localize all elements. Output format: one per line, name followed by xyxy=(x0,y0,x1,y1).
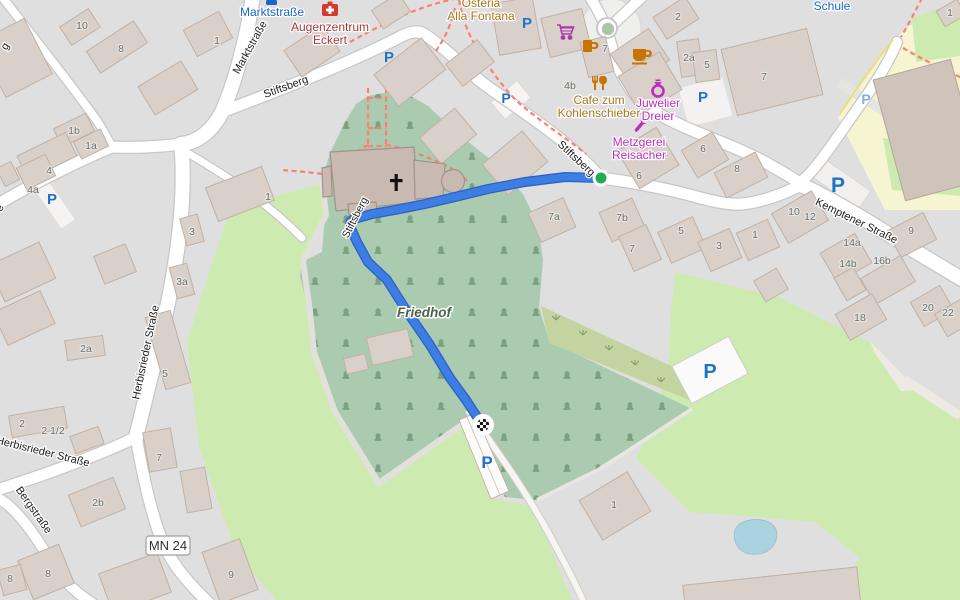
svg-text:Eckert: Eckert xyxy=(313,33,348,47)
svg-text:7: 7 xyxy=(156,452,162,464)
svg-text:7: 7 xyxy=(629,243,635,255)
svg-text:2: 2 xyxy=(19,418,25,430)
svg-text:1: 1 xyxy=(214,35,220,47)
svg-text:2b: 2b xyxy=(92,497,104,509)
svg-text:MN 24: MN 24 xyxy=(149,538,187,553)
svg-text:1a: 1a xyxy=(85,140,97,152)
svg-text:2a: 2a xyxy=(683,52,695,64)
svg-text:P: P xyxy=(47,191,57,208)
svg-text:4a: 4a xyxy=(27,184,39,196)
svg-text:Juwelier: Juwelier xyxy=(636,96,680,110)
svg-text:8: 8 xyxy=(45,568,51,580)
svg-text:Augenzentrum: Augenzentrum xyxy=(291,20,369,34)
svg-text:22: 22 xyxy=(942,307,954,319)
svg-text:16b: 16b xyxy=(873,255,891,267)
svg-text:Reisacher: Reisacher xyxy=(612,148,666,162)
svg-text:P: P xyxy=(481,453,492,472)
svg-text:14a: 14a xyxy=(843,237,861,249)
svg-text:4: 4 xyxy=(46,165,52,177)
svg-text:Kohlenschieber: Kohlenschieber xyxy=(558,106,641,120)
svg-text:1: 1 xyxy=(752,229,758,241)
svg-text:2a: 2a xyxy=(80,343,92,355)
svg-text:6: 6 xyxy=(700,143,706,155)
svg-text:1: 1 xyxy=(947,7,953,19)
svg-text:Cafe zum: Cafe zum xyxy=(573,93,624,107)
svg-text:3: 3 xyxy=(716,240,722,252)
svg-text:8: 8 xyxy=(734,163,740,175)
svg-text:10: 10 xyxy=(788,206,800,218)
svg-text:9: 9 xyxy=(228,569,234,581)
svg-text:8: 8 xyxy=(7,573,13,585)
svg-text:9: 9 xyxy=(908,225,914,237)
svg-text:14b: 14b xyxy=(839,258,857,270)
svg-text:10: 10 xyxy=(76,20,88,32)
svg-text:2 1/2: 2 1/2 xyxy=(41,425,65,437)
svg-text:8: 8 xyxy=(118,43,124,55)
svg-text:Alla Fontana: Alla Fontana xyxy=(447,9,515,23)
svg-text:4b: 4b xyxy=(564,80,576,92)
svg-text:3a: 3a xyxy=(176,276,188,288)
svg-text:P: P xyxy=(831,174,845,197)
svg-text:Marktstraße: Marktstraße xyxy=(240,5,304,19)
svg-text:7: 7 xyxy=(602,43,608,55)
svg-text:1: 1 xyxy=(265,191,271,203)
svg-text:P: P xyxy=(501,90,510,106)
svg-text:5: 5 xyxy=(704,59,710,71)
svg-text:Metzgerei: Metzgerei xyxy=(613,135,666,149)
svg-text:1b: 1b xyxy=(68,125,80,137)
svg-text:P: P xyxy=(703,361,716,383)
svg-text:P: P xyxy=(522,15,532,32)
svg-text:7a: 7a xyxy=(548,211,560,223)
svg-text:18: 18 xyxy=(854,312,866,324)
svg-text:12: 12 xyxy=(804,211,816,223)
svg-text:Schule: Schule xyxy=(814,0,851,13)
svg-text:P: P xyxy=(698,89,708,106)
svg-text:5: 5 xyxy=(162,368,168,380)
svg-text:20: 20 xyxy=(922,302,934,314)
svg-text:P: P xyxy=(861,91,870,107)
svg-text:5: 5 xyxy=(678,225,684,237)
svg-text:P: P xyxy=(384,49,394,66)
svg-text:6: 6 xyxy=(636,170,642,182)
svg-text:7b: 7b xyxy=(616,212,628,224)
svg-text:1: 1 xyxy=(611,499,617,511)
svg-text:Friedhof: Friedhof xyxy=(397,305,452,320)
svg-text:2: 2 xyxy=(675,11,681,23)
svg-text:3: 3 xyxy=(189,226,195,238)
svg-text:Dreier: Dreier xyxy=(642,109,675,123)
svg-text:7: 7 xyxy=(761,71,767,83)
